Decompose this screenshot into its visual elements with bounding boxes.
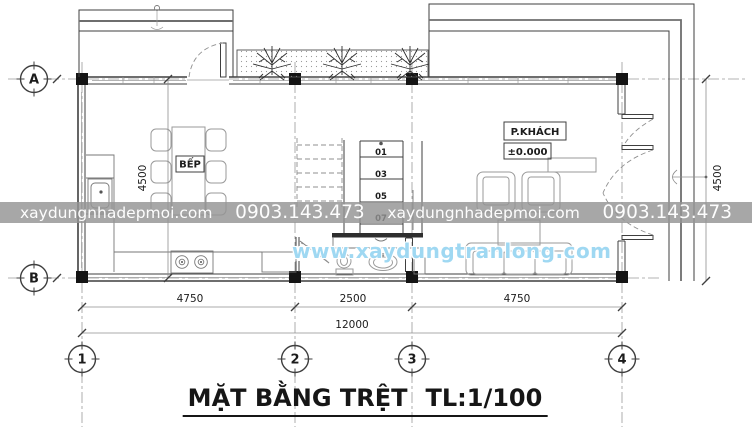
kitchen-label: BẾP (176, 156, 204, 173)
watermark-center: www.xaydungtranlong.com (292, 239, 612, 263)
dim-left-height: 4500 (137, 165, 149, 192)
dimension-left: 4500 (137, 75, 172, 282)
dimension-right: 4500 (672, 75, 724, 285)
watermark-phone-2: 0903.143.473 (603, 202, 732, 223)
axis-bubble-b: B (17, 261, 52, 296)
floor-plan-screenshot: BẾP 01 03 05 07 (0, 0, 752, 430)
dim-span-2-3: 2500 (340, 293, 367, 305)
stair-step-number: 01 (375, 148, 387, 158)
porch-outline (79, 6, 233, 78)
drawing-title-name: MẶT BẰNG TRỆT (188, 384, 408, 412)
dimension-bottom-total: 12000 (78, 319, 626, 337)
axis-label-b: B (29, 272, 39, 287)
axis-label-3: 3 (407, 353, 416, 368)
axis-label-2: 2 (290, 353, 299, 368)
axis-label-a: A (29, 73, 39, 88)
stair-step-number: 03 (375, 170, 387, 180)
axis-bubble-a: A (17, 62, 52, 97)
dim-span-1-2: 4750 (177, 293, 204, 305)
axis-bubble-1: 1 (65, 342, 100, 377)
drawing-title: MẶT BẰNG TRỆTTL:1/100 (183, 385, 548, 417)
kitchen-label-text: BẾP (179, 156, 201, 171)
side-table (548, 158, 596, 172)
dim-total: 12000 (335, 319, 368, 331)
dimension-bottom-row1: 4750 2500 4750 (78, 293, 626, 311)
window-glazing-lines (92, 77, 616, 84)
axis-bubble-4: 4 (605, 342, 640, 377)
stove (171, 251, 213, 273)
level-label-text: ±0.000 (507, 147, 547, 158)
refrigerator (262, 252, 296, 272)
stairs: 01 03 05 07 (297, 138, 423, 241)
axis-label-1: 1 (77, 353, 86, 368)
axis-label-4: 4 (617, 353, 626, 368)
watermark-phone-1: 0903.143.473 (235, 202, 364, 223)
stair-step-number: 05 (375, 192, 387, 202)
dim-span-3-4: 4750 (504, 293, 531, 305)
planter-strip (237, 46, 429, 80)
axis-bubble-3: 3 (395, 342, 430, 377)
drawing-title-scale: TL:1/100 (425, 384, 542, 412)
dim-right-height: 4500 (712, 165, 724, 192)
living-label-text: P.KHÁCH (511, 125, 560, 138)
living-room-label: P.KHÁCH ±0.000 (504, 122, 566, 159)
watermark-site-1: xaydungnhadepmoi.com (20, 204, 212, 222)
axis-bubble-2: 2 (278, 342, 313, 377)
watermark-band: xaydungnhadepmoi.com 0903.143.473 xaydun… (0, 202, 752, 223)
watermark-site-2: xaydungnhadepmoi.com (387, 204, 579, 222)
entrance-door (187, 43, 229, 86)
